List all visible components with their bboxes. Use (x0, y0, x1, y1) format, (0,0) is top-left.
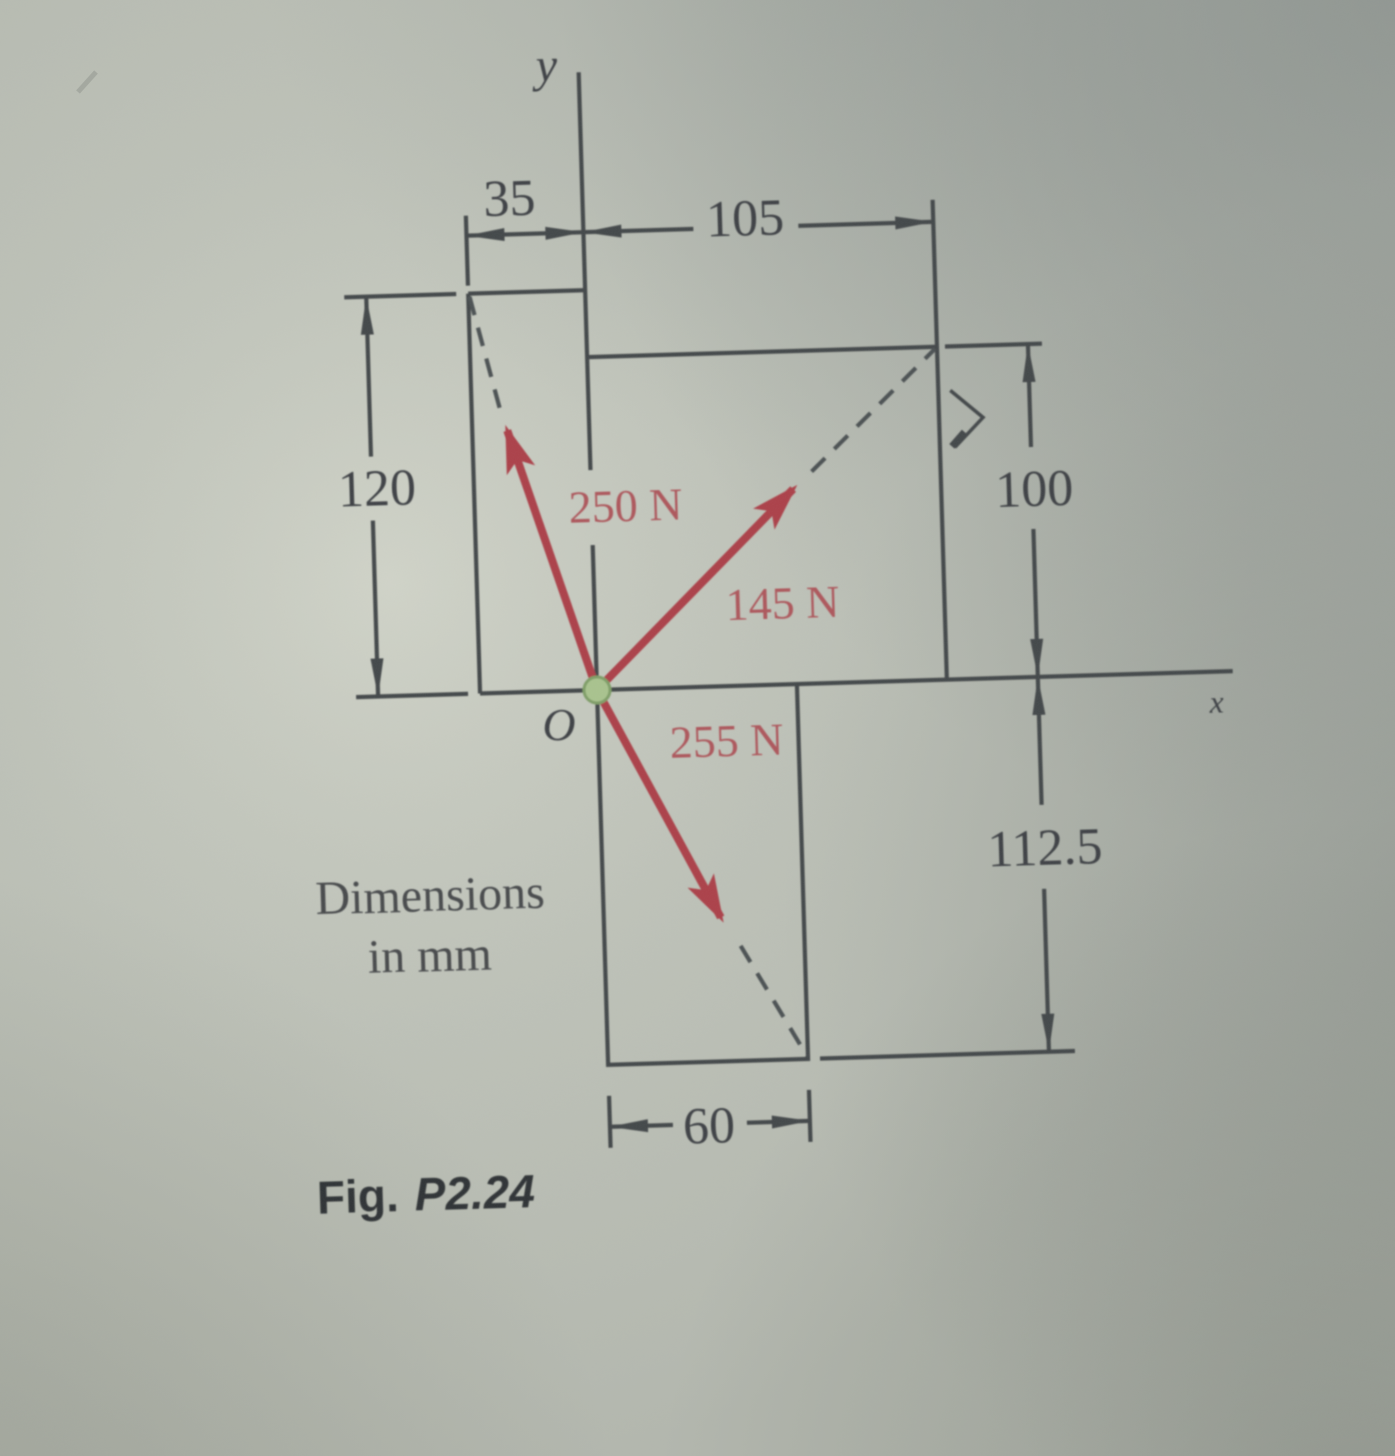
photo-grain-overlay (0, 0, 1395, 1456)
figure-canvas: 35 105 120 100 112.5 60 250 N 145 N 255 … (0, 0, 1395, 1456)
textbook-photo: 35 105 120 100 112.5 60 250 N 145 N 255 … (0, 0, 1395, 1456)
